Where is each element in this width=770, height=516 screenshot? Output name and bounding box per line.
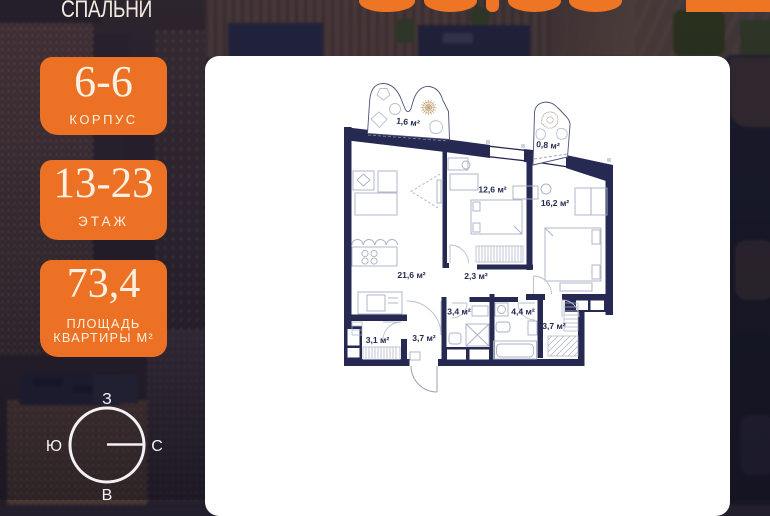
svg-text:В: В (102, 487, 113, 500)
svg-text:0,8 м²: 0,8 м² (536, 139, 560, 151)
svg-text:12,6 м²: 12,6 м² (478, 185, 506, 195)
svg-text:3,7 м²: 3,7 м² (542, 321, 566, 331)
svg-text:4,4 м²: 4,4 м² (511, 307, 535, 317)
svg-text:16,2 м²: 16,2 м² (541, 198, 569, 208)
svg-text:3,1 м²: 3,1 м² (366, 335, 390, 345)
svg-text:3,7 м²: 3,7 м² (412, 333, 436, 343)
svg-text:2,3 м²: 2,3 м² (464, 271, 488, 281)
svg-text:З: З (102, 391, 112, 408)
svg-text:3,4 м²: 3,4 м² (447, 307, 471, 317)
svg-text:Ю: Ю (46, 438, 62, 455)
svg-text:21,6 м²: 21,6 м² (397, 270, 425, 280)
svg-text:С: С (151, 438, 163, 455)
